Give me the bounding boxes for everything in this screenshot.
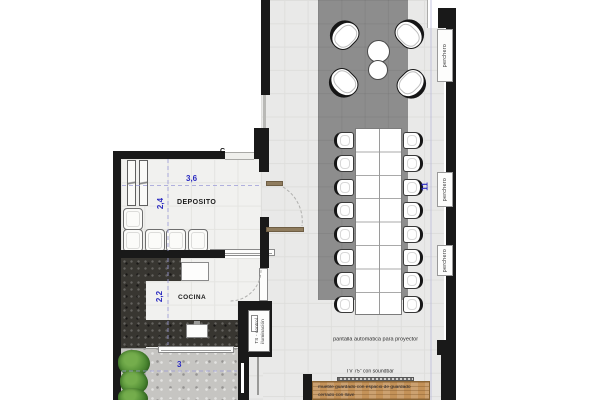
stacked-chair <box>145 229 165 252</box>
lounge-round-table <box>368 60 388 80</box>
projector-screen-note: pantalla automatica para proyector <box>302 337 449 343</box>
cocina-door-leaf <box>259 268 268 301</box>
floor-plan: TS - control iluminación perchero perche… <box>0 0 600 400</box>
conference-chair <box>403 202 423 219</box>
conference-chair <box>403 249 423 266</box>
deposito-room-label: DEPOSITO <box>177 199 216 206</box>
conference-chair <box>403 226 423 243</box>
conference-chair <box>403 132 423 149</box>
stacked-chair <box>188 229 208 252</box>
perchero-label: perchero <box>442 44 448 67</box>
section-marker-c: C <box>220 148 225 155</box>
cabinet-note-line2: cerrado con llave <box>318 393 355 398</box>
dim-deposito-width: 3,6 <box>186 174 197 183</box>
wall-hall-left-upper <box>261 0 270 95</box>
window-in-wall <box>263 95 266 128</box>
cabinet-text-2: cerrado con llave <box>318 393 355 398</box>
fridge <box>181 262 209 281</box>
conference-chair <box>403 272 423 289</box>
kitchen-sink <box>186 324 208 338</box>
conference-chair <box>334 296 354 313</box>
ts-control-label-1: TS - control <box>254 318 259 344</box>
wall-deposito-right-top <box>259 151 269 172</box>
projector-screen-text: pantalla automatica para proyector <box>333 337 418 343</box>
conference-chair <box>334 272 354 289</box>
sink-faucet-icon <box>194 321 200 325</box>
wall-cabinet-left-stub <box>303 374 312 400</box>
dim-deposito-depth: 2,4 <box>156 198 165 209</box>
hall-floor-extension <box>247 352 263 400</box>
perchero-rack: perchero <box>437 29 453 82</box>
conference-chair <box>334 226 354 243</box>
folded-table <box>139 160 148 206</box>
terrace-sliding-door <box>158 346 234 353</box>
wall-right-notch <box>438 8 456 28</box>
conference-chair <box>334 202 354 219</box>
terrace-plants <box>118 350 152 400</box>
cabinet-note-line1: mueble guardado con espacio de guardado <box>318 385 411 390</box>
wall-right-lower <box>441 345 456 400</box>
ts-control-box: TS - control iluminación <box>248 310 270 352</box>
tv-note: TV 75" con soundbar <box>302 369 438 374</box>
dim-hall-length: 11 <box>421 182 430 190</box>
dim-cocina-depth: 2,2 <box>155 291 164 302</box>
stacked-chair <box>123 208 143 230</box>
folded-table <box>127 160 136 206</box>
stacked-chair <box>123 229 143 252</box>
outside-area-mask-2 <box>438 0 456 8</box>
terrace-door-slit <box>241 363 244 393</box>
ts-control-label-2: iluminación <box>260 319 265 344</box>
conference-chair <box>334 179 354 196</box>
perchero-rack: perchero <box>437 172 453 207</box>
conference-chair <box>334 132 354 149</box>
kitchen-counter-bottom <box>121 320 240 347</box>
wall-shelf <box>266 227 304 232</box>
wall-deposito-top <box>113 151 225 159</box>
stacked-chair <box>166 229 186 252</box>
hall-door-track <box>257 357 259 395</box>
conference-table <box>355 128 402 315</box>
conference-chair <box>403 296 423 313</box>
cabinet-text-1: mueble guardado con espacio de guardado <box>318 385 411 390</box>
cocina-room-label: COCINA <box>178 294 206 301</box>
door-lintel <box>266 181 283 186</box>
perchero-label: perchero <box>442 249 448 272</box>
perchero-label: perchero <box>442 178 448 201</box>
wall-hall-left-mid <box>260 217 269 268</box>
conference-chair <box>403 155 423 172</box>
dim-terrace-width: 3 <box>177 360 181 369</box>
conference-chair <box>334 155 354 172</box>
kitchen-counter-top <box>121 258 181 281</box>
perchero-rack: perchero <box>437 245 453 276</box>
tv-text: TV 75" con soundbar <box>346 369 394 374</box>
window-deposito-top <box>225 152 254 160</box>
wall-deposito-cocina-divider <box>113 250 225 258</box>
conference-chair <box>334 249 354 266</box>
